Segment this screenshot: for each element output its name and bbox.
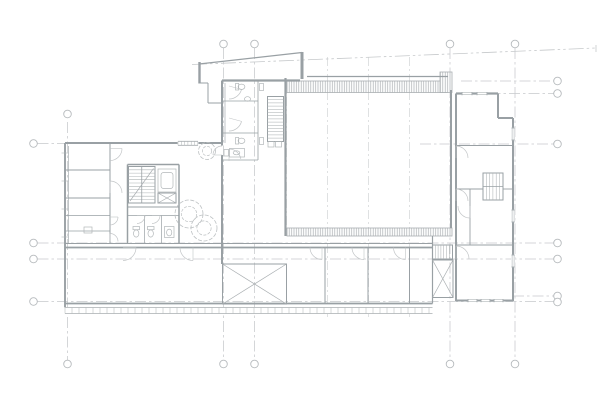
grid-marker-bubble: [251, 360, 259, 368]
grid-marker-bubble: [64, 110, 72, 118]
grid-marker-bubble: [446, 40, 454, 48]
floor-plan-svg: [0, 0, 600, 400]
grid-marker-bubble: [30, 140, 38, 148]
grid-marker-bubble: [220, 360, 228, 368]
grid-marker-bubble: [220, 40, 228, 48]
hatched-wall-band: [287, 81, 447, 93]
hatched-wall-band: [440, 72, 452, 93]
grid-marker-bubble: [30, 255, 38, 263]
grid-marker-bubble: [30, 298, 38, 306]
grid-marker-bubble: [511, 40, 519, 48]
grid-marker-bubble: [554, 90, 562, 98]
grid-marker-bubble: [64, 360, 72, 368]
grid-marker-bubble: [554, 77, 562, 85]
hatched-wall-band: [287, 228, 452, 236]
grid-marker-bubble: [554, 140, 562, 148]
grid-marker-bubble: [554, 239, 562, 247]
grid-marker-bubble: [554, 298, 562, 306]
grid-marker-bubble: [446, 360, 454, 368]
grid-marker-bubble: [30, 239, 38, 247]
floor-plan-canvas: [0, 0, 600, 400]
grid-marker-bubble: [251, 40, 259, 48]
grid-marker-bubble: [511, 360, 519, 368]
grid-marker-bubble: [554, 255, 562, 263]
drawing-page: [0, 0, 600, 400]
